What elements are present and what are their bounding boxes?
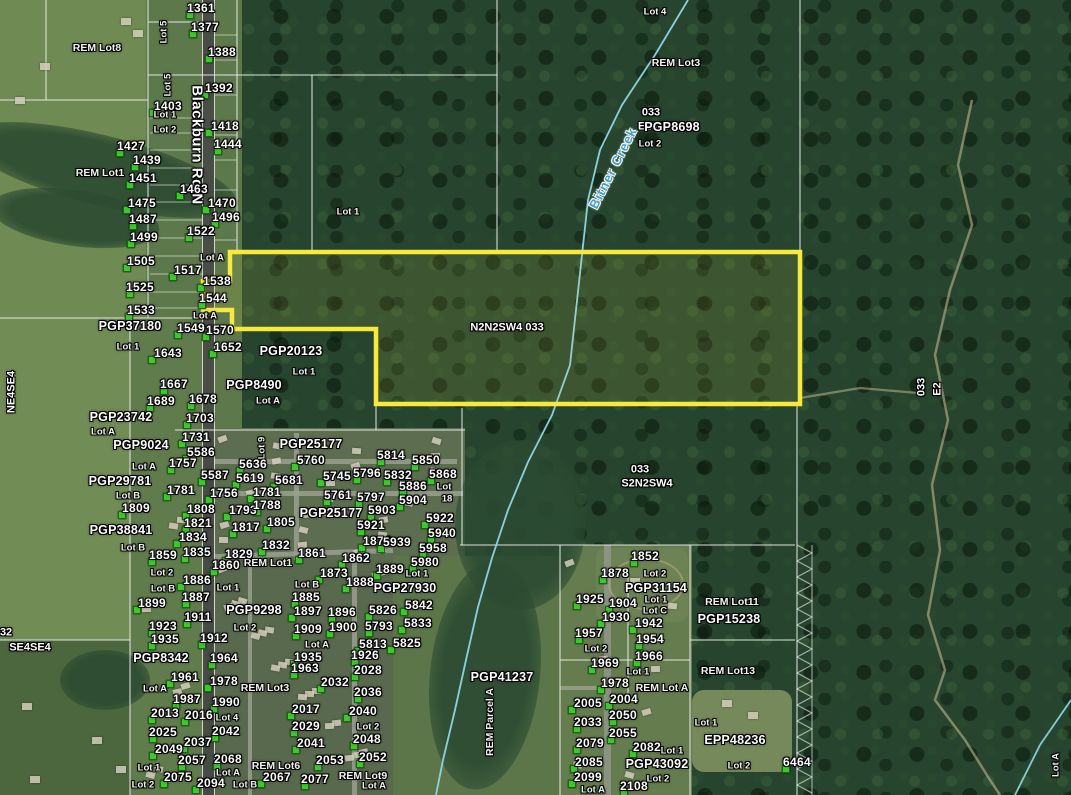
- address-label: 2079: [576, 737, 604, 749]
- address-label: 1781: [167, 484, 195, 496]
- address-label: 1533: [127, 304, 155, 316]
- address-label: 1835: [183, 546, 211, 558]
- address-label: 1904: [609, 597, 637, 609]
- address-label: 1942: [635, 617, 663, 629]
- map-canvas[interactable]: Aerial cadastral parcel map — Blackburn …: [0, 0, 1071, 795]
- address-label: 1487: [129, 213, 157, 225]
- plan-number-label: PGP20123: [260, 345, 323, 358]
- address-label: 1544: [199, 292, 227, 304]
- address-label: 2052: [359, 751, 387, 763]
- address-label: 2053: [316, 754, 344, 766]
- lot-label: Lot B: [116, 491, 140, 501]
- lot-label: Lot 1: [337, 207, 360, 217]
- address-label: 1444: [214, 138, 242, 150]
- address-label: 1439: [133, 154, 161, 166]
- lot-label: Lot 1: [645, 595, 668, 605]
- address-label: 1909: [294, 623, 322, 635]
- lot-label: Lot 2: [639, 139, 662, 149]
- address-label: 1966: [635, 650, 663, 662]
- lot-label: Lot A: [132, 462, 156, 472]
- lot-label: Lot B: [233, 780, 257, 790]
- lot-label: Lot 2: [357, 722, 380, 732]
- address-label: 5886: [399, 480, 427, 492]
- address-label: 1896: [328, 606, 356, 618]
- section-label: 032: [0, 628, 12, 639]
- address-label: 1418: [211, 120, 239, 132]
- lot-label: Lot A: [362, 781, 386, 791]
- lot-label: Lot 4: [216, 713, 239, 723]
- lot-label: Lot 9: [257, 437, 267, 460]
- address-label: 2094: [197, 777, 225, 789]
- section-label: 033: [917, 378, 928, 396]
- address-label: 1781: [253, 486, 281, 498]
- address-label: 5939: [383, 536, 411, 548]
- address-label: 5797: [357, 491, 385, 503]
- address-label: 1570: [206, 324, 234, 336]
- address-label: 5760: [297, 454, 325, 466]
- address-label: 2099: [574, 771, 602, 783]
- address-label: 1900: [329, 621, 357, 633]
- rem-lot-label: REM Parcel A: [485, 688, 496, 756]
- rem-lot-label: REM Lot A: [636, 683, 689, 694]
- address-label: 2082: [633, 741, 661, 753]
- address-label: 1499: [130, 231, 158, 243]
- lot-label: Lot 5: [163, 74, 173, 97]
- lot-label: Lot 2: [151, 568, 174, 578]
- farm-building: [22, 703, 32, 710]
- house-rooftop: [352, 448, 361, 455]
- address-label: 5842: [405, 599, 433, 611]
- address-label: 1538: [203, 275, 231, 287]
- lot-label: Lot A: [143, 684, 167, 694]
- address-label: 1878: [601, 567, 629, 579]
- address-label: 5958: [419, 542, 447, 554]
- address-label: 2028: [354, 664, 382, 676]
- address-label: 1886: [183, 574, 211, 586]
- lot-label: Lot 1: [293, 367, 316, 377]
- address-label: 5825: [393, 637, 421, 649]
- address-label: 2057: [178, 754, 206, 766]
- address-label: 1852: [631, 550, 659, 562]
- address-label: 5636: [239, 458, 267, 470]
- address-label: 2005: [574, 697, 602, 709]
- address-label: 1522: [187, 225, 215, 237]
- plan-number-label: PGP9024: [113, 439, 169, 452]
- plan-number-label: PGP27930: [374, 582, 437, 595]
- address-label: 1470: [208, 197, 236, 209]
- address-label: 1861: [298, 547, 326, 559]
- address-label: 1808: [187, 503, 215, 515]
- plan-number-label: PGP23742: [90, 411, 153, 424]
- address-label: 1821: [184, 517, 212, 529]
- address-label: 5868: [429, 468, 457, 480]
- section-label: 033: [642, 108, 660, 119]
- address-label: 1964: [210, 652, 238, 664]
- lot-label: Lot 2: [585, 644, 608, 654]
- address-label: 1862: [342, 552, 370, 564]
- lot-label: Lot 1: [138, 763, 161, 773]
- section-label: 033: [631, 465, 649, 476]
- address-label: 5980: [411, 556, 439, 568]
- address-label: 1805: [267, 516, 295, 528]
- address-label: 1667: [160, 378, 188, 390]
- address-label: 1911: [184, 611, 211, 623]
- address-label: 1361: [187, 2, 215, 14]
- address-label: 1860: [212, 559, 240, 571]
- address-label: 5903: [368, 504, 396, 516]
- address-label: 1978: [210, 675, 238, 687]
- address-label: 5761: [324, 489, 352, 501]
- address-label: 2032: [321, 676, 349, 688]
- lot-label: Lot A: [200, 253, 224, 263]
- lot-label: Lot A: [91, 427, 115, 437]
- house-rooftop: [219, 537, 228, 543]
- address-label: 2029: [292, 720, 320, 732]
- farm-building: [30, 776, 40, 783]
- address-label: 5814: [377, 449, 405, 461]
- address-label: 2017: [292, 703, 320, 715]
- address-label: 1954: [636, 633, 664, 645]
- address-label: 1899: [138, 597, 166, 609]
- address-label: 1756: [210, 487, 238, 499]
- address-label: 1832: [262, 539, 290, 551]
- plan-number-label: PGP43092: [626, 758, 689, 771]
- address-label: 1961: [171, 671, 199, 683]
- address-label: 2075: [164, 771, 192, 783]
- plan-number-label: PGP37180: [99, 320, 162, 333]
- address-label: 1451: [129, 172, 157, 184]
- address-label: 2108: [620, 780, 648, 792]
- address-label: 6464: [783, 756, 811, 768]
- address-label: 1643: [154, 347, 182, 359]
- address-label: 2041: [297, 737, 325, 749]
- farm-building: [748, 712, 758, 719]
- lot-label: Lot C: [643, 606, 667, 616]
- rem-lot-label: REM Lot3: [241, 683, 289, 694]
- house-rooftop: [668, 603, 677, 610]
- address-label: 1987: [173, 693, 201, 705]
- rem-lot-label: REM Lot11: [705, 597, 759, 608]
- address-label: 1935: [151, 633, 179, 645]
- address-label: 5587: [201, 469, 229, 481]
- address-label: 1957: [575, 627, 603, 639]
- address-label: 5850: [412, 454, 440, 466]
- lot-label: Lot 2: [234, 623, 257, 633]
- address-label: 1885: [292, 591, 320, 603]
- address-label: 2050: [609, 709, 637, 721]
- farm-building: [40, 63, 50, 70]
- address-label: 1496: [212, 211, 240, 223]
- plan-number-label: PGP29781: [89, 475, 152, 488]
- address-label: 1978: [601, 677, 629, 689]
- lot-label: Lot B: [151, 584, 175, 594]
- plan-number-label: PGP41237: [471, 671, 534, 684]
- address-label: 5826: [369, 604, 397, 616]
- address-label: 1809: [122, 502, 150, 514]
- address-label: 1388: [208, 46, 236, 58]
- address-label: 2085: [575, 756, 603, 768]
- lot-label: Lot 1: [217, 583, 240, 593]
- address-label: 1912: [200, 632, 228, 644]
- plan-number-label: PGP8698: [644, 121, 700, 134]
- address-label: 2040: [349, 705, 377, 717]
- farm-building: [15, 97, 25, 104]
- address-label: 1549: [177, 322, 205, 334]
- plan-number-label: PGP9298: [226, 604, 282, 617]
- section-label: E2: [933, 382, 944, 395]
- address-label: 2033: [574, 716, 602, 728]
- address-label: 1817: [232, 521, 260, 533]
- address-label: 1925: [576, 593, 604, 605]
- plan-number-label: PGP25177: [280, 438, 343, 451]
- address-label: 1427: [117, 140, 145, 152]
- rem-lot-label: REM Lot8: [73, 43, 121, 54]
- section-label: NE4SE4: [7, 371, 18, 413]
- plan-number-label: EPP48236: [704, 734, 765, 747]
- address-label: 5796: [353, 467, 381, 479]
- lot-label: Lot: [437, 482, 452, 492]
- lot-label: Lot A: [256, 396, 280, 406]
- lot-label: Lot 1: [695, 718, 718, 728]
- address-label: 2025: [149, 726, 177, 738]
- address-label: 1652: [214, 341, 242, 353]
- lot-label: Lot 2: [154, 125, 177, 135]
- lot-label: Lot 1: [117, 342, 140, 352]
- house-rooftop: [325, 723, 334, 729]
- address-label: 1834: [179, 531, 207, 543]
- lot-label: Lot 1: [406, 569, 429, 579]
- rem-lot-label: REM Lot3: [652, 58, 700, 69]
- address-label: 1889: [376, 563, 404, 575]
- address-label: 1990: [212, 696, 240, 708]
- address-label: 1517: [174, 264, 202, 276]
- plan-number-label: PGP38841: [90, 524, 153, 537]
- address-label: 1525: [126, 281, 154, 293]
- lot-label: Lot B: [295, 580, 319, 590]
- address-label: 2036: [354, 686, 382, 698]
- lot-label: Lot A: [581, 785, 605, 795]
- address-label: 1475: [128, 197, 156, 209]
- address-label: 1888: [346, 576, 374, 588]
- section-label: N2N2SW4 033: [470, 323, 543, 334]
- address-label: 1403: [154, 100, 182, 112]
- address-label: 5940: [428, 527, 456, 539]
- farm-building: [116, 766, 126, 773]
- farm-building: [722, 700, 732, 707]
- address-label: 5619: [236, 472, 264, 484]
- address-label: 1731: [182, 431, 210, 443]
- house-rooftop: [651, 666, 660, 672]
- address-label: 1505: [127, 255, 155, 267]
- address-label: 1923: [149, 620, 177, 632]
- address-label: 2055: [609, 727, 637, 739]
- address-label: 1859: [149, 549, 177, 561]
- address-label: 2016: [185, 709, 213, 721]
- lot-label: Lot 2: [728, 761, 751, 771]
- farm-building: [92, 737, 102, 744]
- address-label: 5793: [365, 620, 393, 632]
- lot-label: Lot 2: [647, 774, 670, 784]
- address-label: 1897: [294, 605, 322, 617]
- address-label: 5745: [323, 470, 351, 482]
- farm-building: [133, 30, 143, 37]
- lot-label: Lot 5: [159, 21, 169, 44]
- house-rooftop: [169, 522, 179, 529]
- address-label: 1969: [591, 657, 619, 669]
- address-label: 2004: [610, 693, 638, 705]
- address-label: 1392: [205, 82, 233, 94]
- lot-label: Lot A: [193, 311, 217, 321]
- section-label: SE4SE4: [9, 643, 51, 654]
- address-label: 5833: [404, 617, 432, 629]
- plan-number-label: PGP25177: [300, 507, 363, 520]
- address-label: 2037: [184, 736, 212, 748]
- plan-number-label: PGP15238: [698, 613, 761, 626]
- lot-label: Lot 2: [132, 780, 155, 790]
- section-label: S2N2SW4: [621, 479, 672, 490]
- address-label: 1678: [189, 393, 217, 405]
- address-label: 1887: [182, 591, 210, 603]
- address-label: 1689: [147, 395, 175, 407]
- lot-label: Lot B: [121, 543, 145, 553]
- address-label: 2048: [353, 733, 381, 745]
- rem-lot-label: REM Lot1: [76, 168, 124, 179]
- address-label: 2042: [212, 725, 240, 737]
- address-label: 1788: [253, 499, 281, 511]
- lot-label: Lot A: [305, 640, 329, 650]
- address-label: 2077: [301, 773, 329, 785]
- address-label: 5921: [357, 519, 385, 531]
- plan-number-label: PGP31154: [625, 582, 687, 595]
- lot-label: Lot 1: [661, 746, 684, 756]
- address-label: 1703: [186, 412, 214, 424]
- address-label: 2068: [214, 753, 242, 765]
- lot-label: Lot 2: [644, 569, 667, 579]
- address-label: 1926: [351, 649, 379, 661]
- lot-label: Lot 4: [644, 7, 667, 17]
- address-label: 1873: [320, 567, 348, 579]
- rem-lot-label: REM Lot13: [701, 666, 755, 677]
- address-label: 5904: [399, 494, 427, 506]
- house-rooftop: [298, 694, 307, 701]
- lot-label: Lot A: [1051, 753, 1061, 777]
- address-label: 1930: [602, 611, 630, 623]
- house-rooftop: [345, 754, 355, 761]
- address-label: 1963: [291, 662, 319, 674]
- lot-label: Lot 1: [627, 667, 650, 677]
- plan-number-label: PGP8342: [133, 652, 189, 665]
- address-label: 1377: [191, 21, 219, 33]
- address-label: 2013: [151, 707, 179, 719]
- address-label: 2067: [263, 771, 291, 783]
- plan-number-label: PGP8490: [226, 379, 282, 392]
- farm-building: [121, 18, 131, 25]
- address-label: 1463: [180, 183, 208, 195]
- address-label: 1757: [169, 457, 197, 469]
- lot-label: 18: [442, 494, 453, 504]
- address-label: 5922: [426, 512, 454, 524]
